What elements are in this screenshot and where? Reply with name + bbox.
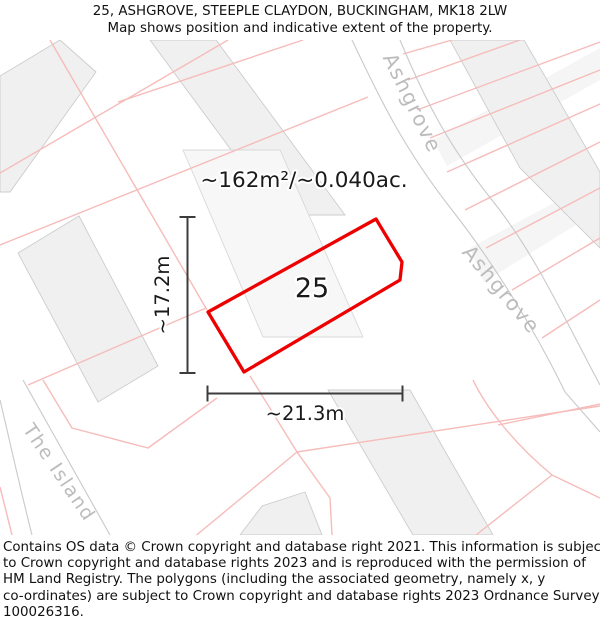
building — [0, 40, 96, 192]
map-canvas: Ashgrove Ashgrove The Island ~162m²/~0.0… — [0, 40, 600, 535]
parcel-line — [473, 380, 600, 498]
copyright-line: co-ordinates) are subject to Crown copyr… — [3, 589, 600, 605]
map-title: 25, ASHGROVE, STEEPLE CLAYDON, BUCKINGHA… — [0, 4, 600, 37]
parcel-line — [403, 40, 452, 54]
title-address-line: 25, ASHGROVE, STEEPLE CLAYDON, BUCKINGHA… — [0, 4, 600, 21]
parcel-line — [542, 300, 600, 338]
width-dimension-label: ~21.3m — [266, 402, 345, 425]
copyright-line: to Crown copyright and database rights 2… — [3, 556, 600, 572]
area-label: ~162m²/~0.040ac. — [200, 168, 407, 193]
title-subtitle-line: Map shows position and indicative extent… — [0, 21, 600, 38]
the-island-road-west-edge — [0, 400, 32, 535]
building — [240, 492, 322, 535]
parcel-line — [0, 487, 12, 535]
map-svg: Ashgrove Ashgrove The Island ~162m²/~0.0… — [0, 40, 600, 535]
copyright-notice: Contains OS data © Crown copyright and d… — [3, 540, 600, 621]
copyright-line: Contains OS data © Crown copyright and d… — [3, 540, 600, 556]
height-dimension-label: ~17.2m — [151, 256, 174, 335]
property-map-page: 25, ASHGROVE, STEEPLE CLAYDON, BUCKINGHA… — [0, 0, 600, 625]
copyright-line: 100026316. — [3, 605, 600, 621]
street-label-the-island: The Island — [18, 419, 100, 526]
parcel-line — [43, 380, 217, 448]
parcel-line — [476, 475, 552, 535]
building — [18, 216, 158, 402]
building — [328, 390, 493, 535]
plot-number-label: 25 — [295, 273, 329, 304]
copyright-line: HM Land Registry. The polygons (includin… — [3, 572, 600, 588]
